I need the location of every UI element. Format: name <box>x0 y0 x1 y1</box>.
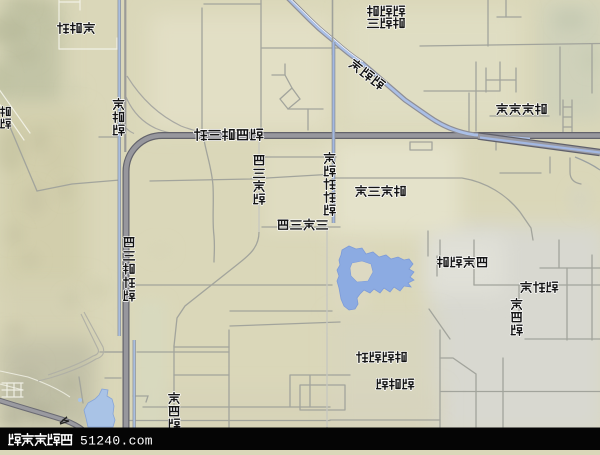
svg-text:51240.com: 51240.com <box>80 434 153 449</box>
